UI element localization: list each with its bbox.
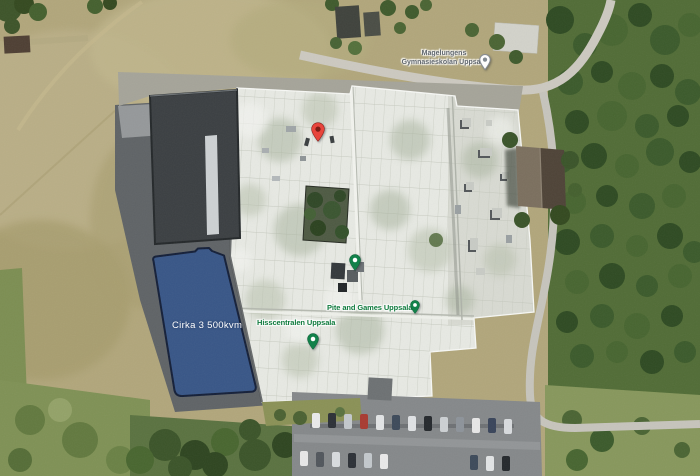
photo-grain	[0, 0, 700, 476]
satellite-imagery	[0, 0, 700, 476]
green-pin-hisscentralen[interactable]	[307, 333, 319, 350]
red-property-pin[interactable]	[311, 122, 325, 142]
school-pin[interactable]	[479, 54, 491, 70]
green-pin-courtyard[interactable]	[349, 254, 361, 271]
satellite-map[interactable]: Cirka 3 500kvm Hisscentralen Uppsala Pit…	[0, 0, 700, 476]
green-pin-pite-and-games[interactable]	[410, 300, 420, 314]
